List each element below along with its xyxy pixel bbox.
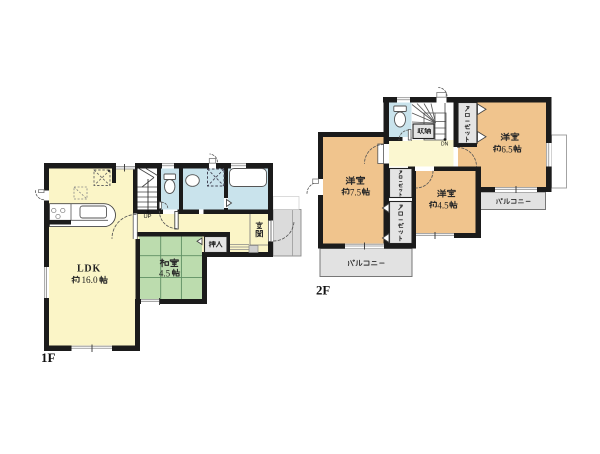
svg-text:2F: 2F [316,284,330,298]
svg-text:6.5: 6.5 [501,144,513,154]
svg-text:UP: UP [144,214,152,220]
svg-text:DN: DN [441,141,449,147]
svg-text:1F: 1F [41,350,56,365]
svg-text:LDK: LDK [77,264,101,275]
svg-text:4.5: 4.5 [437,200,449,210]
svg-text:4.5: 4.5 [159,268,171,278]
svg-text:16.0: 16.0 [81,275,97,285]
svg-text:7.5: 7.5 [350,187,362,197]
